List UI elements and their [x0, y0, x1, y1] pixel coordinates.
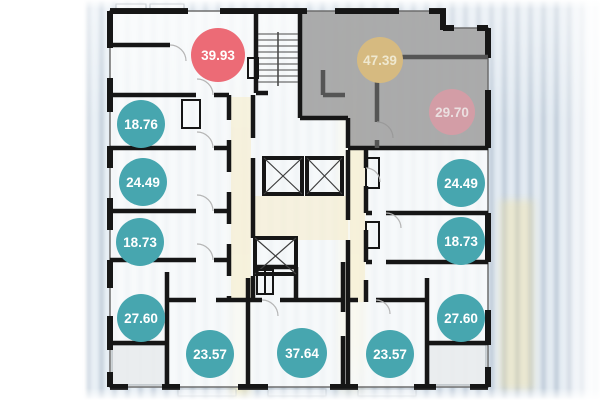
svg-text:23.57: 23.57	[373, 347, 407, 362]
floor-plan: 39.93 47.39 29.70 18.76 24.49 24.49	[0, 0, 600, 400]
unit-badge-18-76[interactable]: 18.76	[117, 100, 165, 148]
floor-plan-screenshot: 39.93 47.39 29.70 18.76 24.49 24.49	[0, 0, 600, 400]
svg-text:37.64: 37.64	[285, 346, 319, 361]
unit-badge-18-73-left[interactable]: 18.73	[116, 218, 164, 266]
unit-badge-23-57-left[interactable]: 23.57	[186, 330, 234, 378]
unit-badge-29-70[interactable]: 29.70	[429, 89, 475, 135]
unit-badge-27-60-right[interactable]: 27.60	[437, 294, 485, 342]
svg-text:27.60: 27.60	[124, 311, 158, 326]
svg-text:18.76: 18.76	[124, 117, 158, 132]
svg-text:18.73: 18.73	[123, 235, 157, 250]
unit-badge-39-93[interactable]: 39.93	[191, 28, 245, 82]
svg-text:27.60: 27.60	[444, 311, 478, 326]
svg-text:24.49: 24.49	[444, 176, 478, 191]
svg-text:18.73: 18.73	[444, 234, 478, 249]
unit-badge-47-39[interactable]: 47.39	[357, 37, 403, 83]
unit-badge-37-64[interactable]: 37.64	[277, 328, 327, 378]
svg-text:39.93: 39.93	[201, 48, 235, 63]
svg-text:29.70: 29.70	[435, 105, 469, 120]
svg-text:47.39: 47.39	[363, 53, 397, 68]
unit-badge-24-49-left[interactable]: 24.49	[119, 158, 167, 206]
unit-badge-18-73-right[interactable]: 18.73	[437, 217, 485, 265]
unit-badge-23-57-right[interactable]: 23.57	[366, 330, 414, 378]
svg-text:24.49: 24.49	[126, 175, 160, 190]
unit-badge-24-49-right[interactable]: 24.49	[437, 159, 485, 207]
unit-badge-27-60-left[interactable]: 27.60	[117, 294, 165, 342]
svg-text:23.57: 23.57	[193, 347, 227, 362]
